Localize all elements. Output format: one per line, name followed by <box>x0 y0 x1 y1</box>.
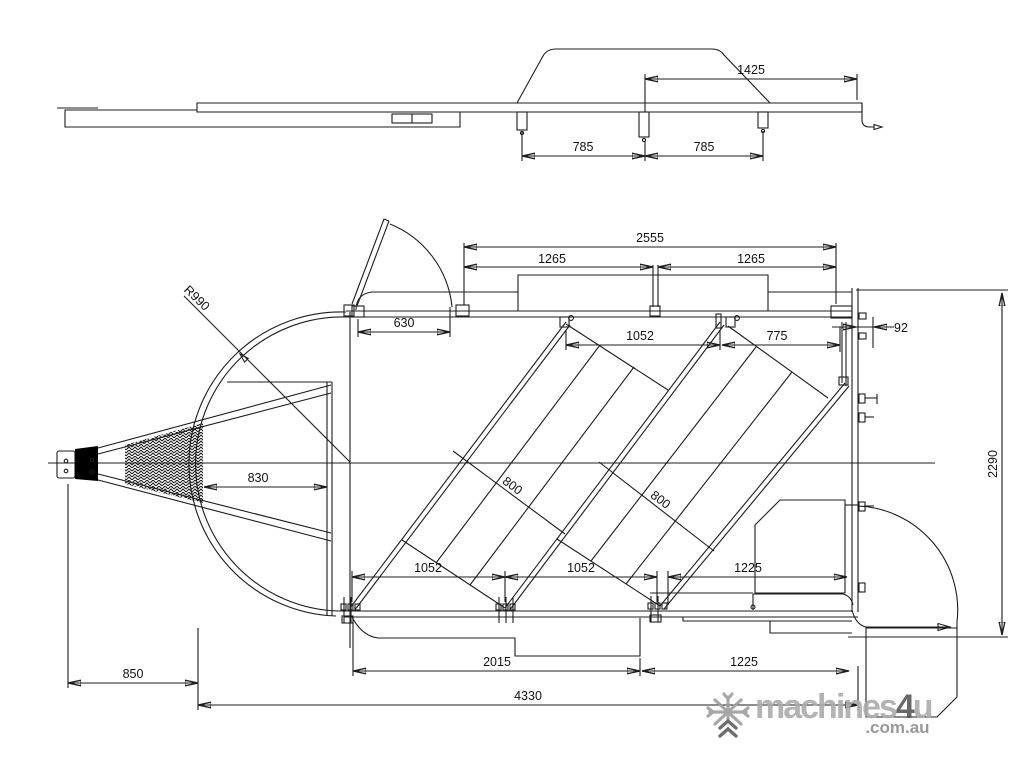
dim-850: 850 <box>123 667 144 681</box>
underbody-frame <box>352 617 852 656</box>
dim-775: 775 <box>767 329 788 343</box>
support-legs <box>517 112 768 142</box>
dim-830: 830 <box>248 471 269 485</box>
dim-1052-bottom-left: 1052 <box>414 561 442 575</box>
rear-hook <box>862 103 882 130</box>
dim-630: 630 <box>394 316 415 330</box>
rear-wall-hinges <box>859 313 877 592</box>
dim-92: 92 <box>894 321 908 335</box>
dim-2555: 2555 <box>636 231 664 245</box>
fender-profile <box>517 49 770 103</box>
dim-785-left: 785 <box>573 140 594 154</box>
dim-1052-bottom-mid: 1052 <box>567 561 595 575</box>
ramp-bottom-hinges <box>341 596 667 623</box>
front-bulkhead <box>227 382 332 616</box>
dim-4330: 4330 <box>514 689 542 703</box>
side-view: 1425 785 785 <box>57 49 882 161</box>
rear-step <box>650 500 858 610</box>
dim-1265-left: 1265 <box>538 252 566 266</box>
trailer-technical-drawing-page: { "page": { "background": "#ffffff", "li… <box>0 0 1024 768</box>
plan-view-dimensions: 2555 1265 1265 630 1052 775 92 <box>68 231 1008 710</box>
rear-door-open <box>852 506 958 717</box>
trailer-cad-drawing: 1425 785 785 <box>0 0 1024 768</box>
dim-785-right: 785 <box>694 140 715 154</box>
dim-1225-upper: 1225 <box>734 561 762 575</box>
dim-2015: 2015 <box>483 655 511 669</box>
deck-outline <box>57 103 862 127</box>
front-door-open <box>352 219 452 307</box>
plan-view: 2555 1265 1265 630 1052 775 92 <box>48 219 1008 717</box>
dim-1052-top: 1052 <box>626 329 654 343</box>
dim-1225-lower: 1225 <box>730 655 758 669</box>
lane-cross-members <box>402 324 828 608</box>
dim-2290: 2290 <box>986 450 1000 478</box>
dim-800-left: 800 <box>500 474 525 498</box>
dim-800-right: 800 <box>648 488 673 512</box>
dim-1425: 1425 <box>737 63 765 77</box>
dim-1265-right: 1265 <box>737 252 765 266</box>
